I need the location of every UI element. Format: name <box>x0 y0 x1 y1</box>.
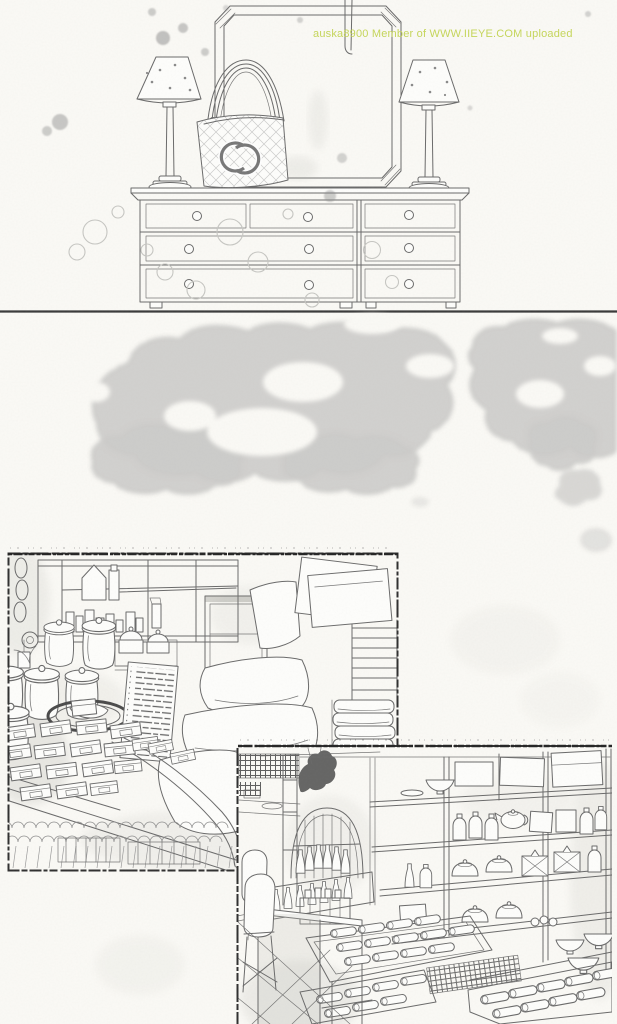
artwork-canvas <box>0 0 617 1024</box>
manga-page: auska8900 Member of WWW.IIEYE.COM upload… <box>0 0 617 1024</box>
watermark-text: auska8900 Member of WWW.IIEYE.COM upload… <box>313 28 573 40</box>
scan-grain-overlay <box>0 0 617 1024</box>
